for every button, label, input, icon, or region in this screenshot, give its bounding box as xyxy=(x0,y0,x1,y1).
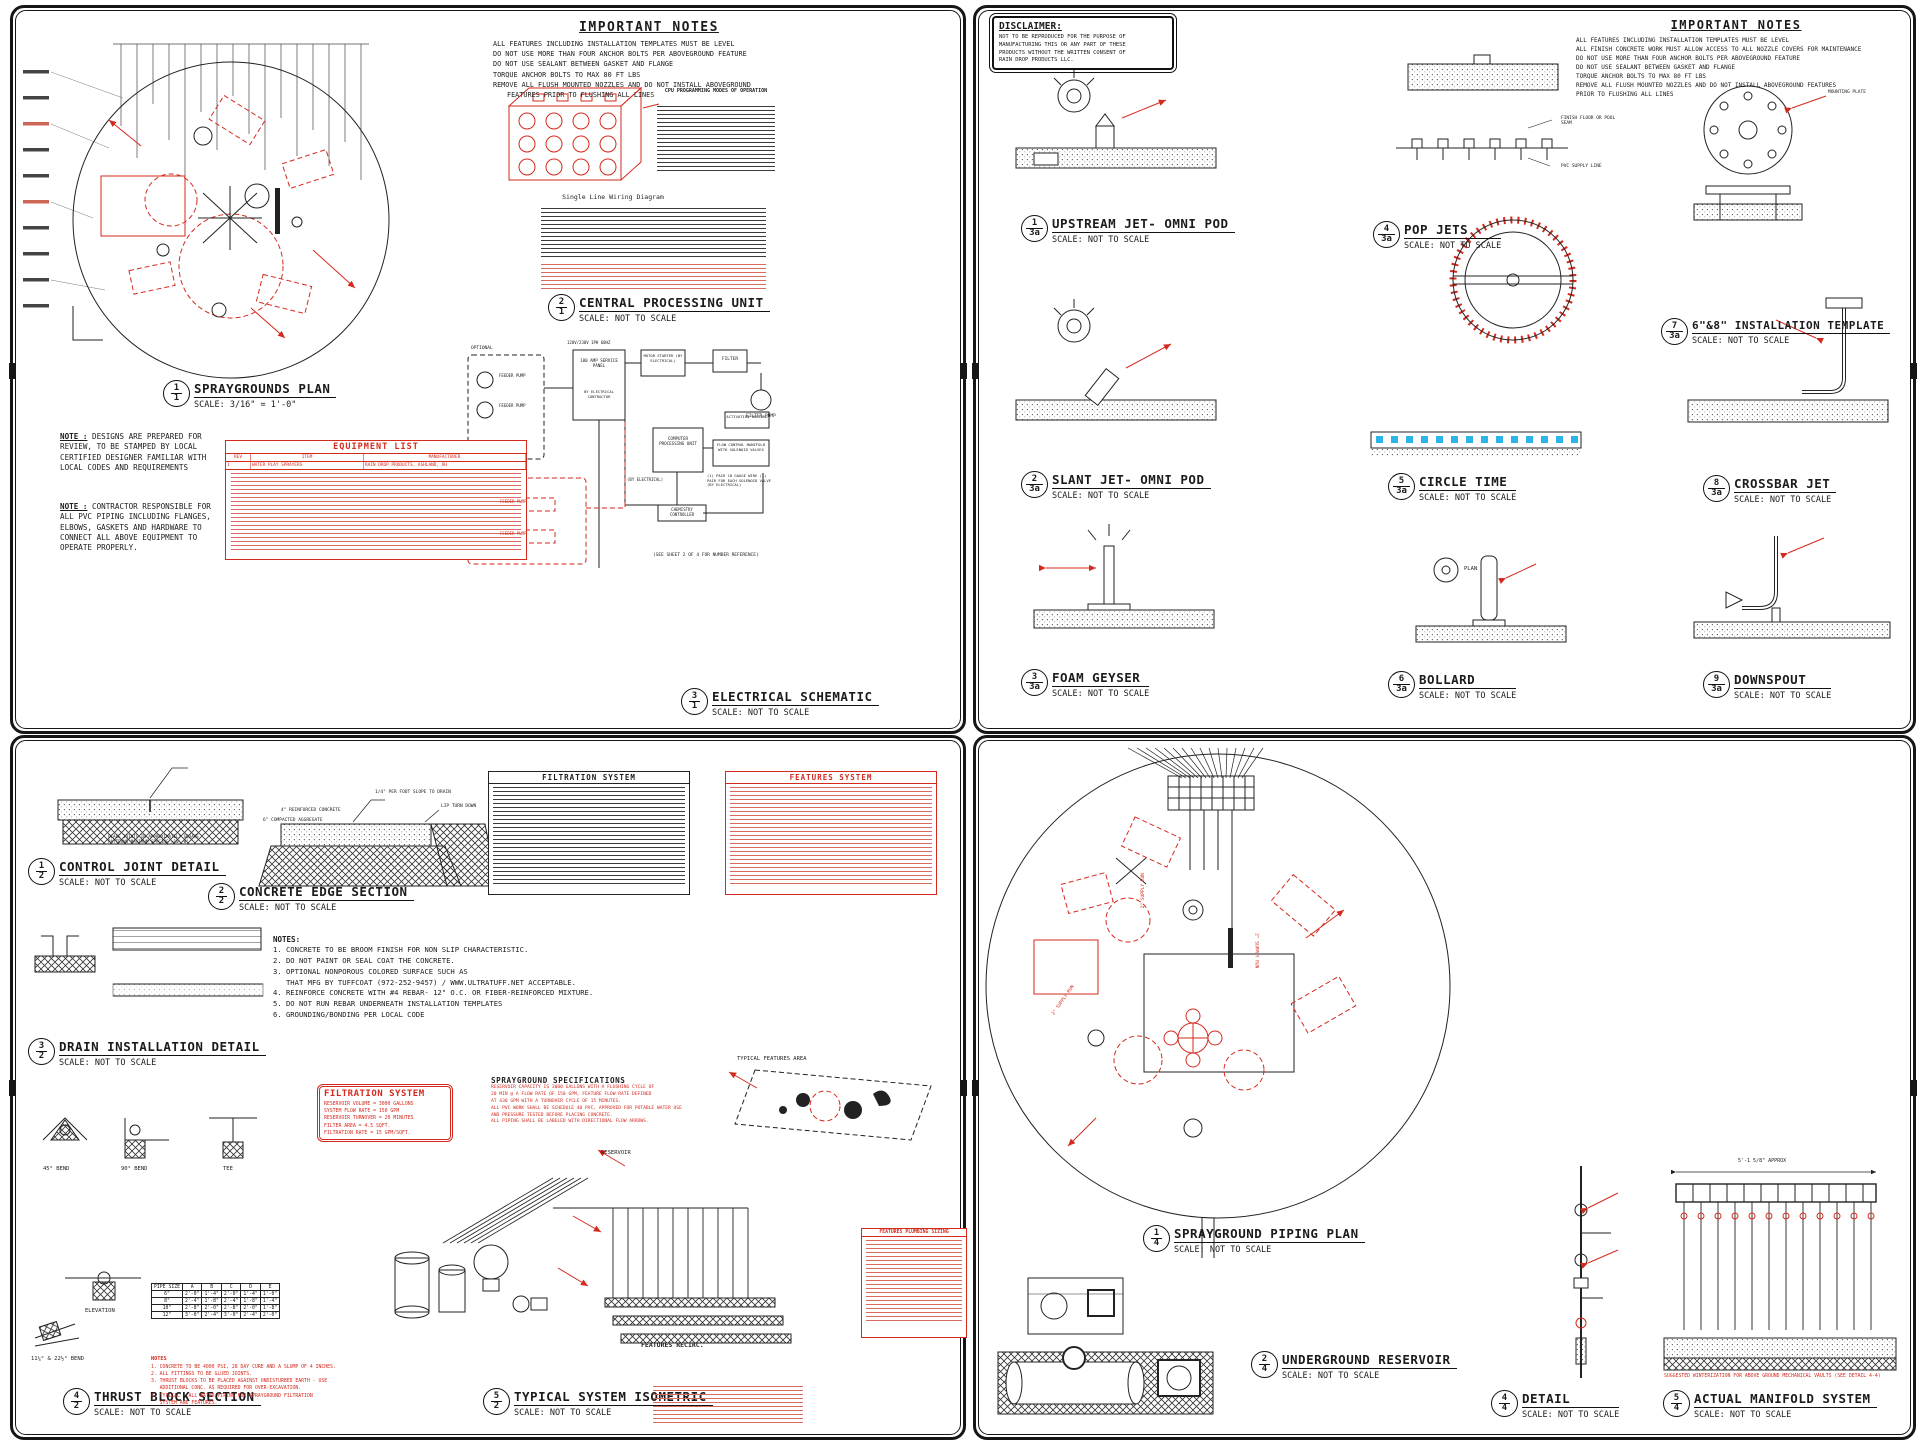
foam-geyser-drawing xyxy=(1034,524,1214,628)
detail-name: POP JETS xyxy=(1404,221,1501,239)
detail-title-spraygrounds-plan: 11 SPRAYGROUNDS PLANSCALE: 3/16" = 1'-0" xyxy=(163,380,336,410)
detail-title-upstream-jet: 13a UPSTREAM JET- OMNI PODSCALE: NOT TO … xyxy=(1021,215,1235,245)
detail-name: SPRAYGROUND PIPING PLAN xyxy=(1174,1225,1365,1243)
equipment-rows-greek xyxy=(231,473,521,551)
detail-title-piping-plan: 14 SPRAYGROUND PIPING PLANSCALE: NOT TO … xyxy=(1143,1225,1365,1255)
detail-scale: SCALE: NOT TO SCALE xyxy=(1522,1408,1619,1420)
detail-title-installation-template: 73a 6"&8" INSTALLATION TEMPLATESCALE: NO… xyxy=(1661,318,1890,346)
voltage-label: 120V/230V 1PH 60HZ xyxy=(567,341,610,346)
joint-spacing-label: PLACE JOINTS IN APPROXIMATELY SQUARE PAT… xyxy=(108,834,203,844)
equipment-list-title: EQUIPMENT LIST xyxy=(226,441,526,454)
detail-title-central-processing-unit: 21 CENTRAL PROCESSING UNITSCALE: NOT TO … xyxy=(548,294,770,324)
sheet-2-feature-details: DISCLAIMER: NOT TO BE REPRODUCED FOR THE… xyxy=(973,5,1916,734)
isometric-red-notes-greek xyxy=(653,1386,803,1424)
concrete-notes-block: NOTES: 1. CONCRETE TO BE BROOM FINISH FO… xyxy=(273,934,693,1021)
detail-title-electrical-schematic: 31 ELECTRICAL SCHEMATICSCALE: NOT TO SCA… xyxy=(681,688,879,718)
mounting-plate-label: MOUNTING PLATE xyxy=(1828,90,1866,95)
detail-name: ACTUAL MANIFOLD SYSTEM xyxy=(1694,1390,1877,1408)
note-line: 2. DO NOT PAINT OR SEAL COAT THE CONCRET… xyxy=(273,956,693,967)
cell: 1'-8" xyxy=(202,1298,221,1305)
note-label: NOTE : xyxy=(60,432,87,441)
spec-line: FILTRATION RATE = 15 GPM/SQFT. xyxy=(324,1130,446,1137)
detail-title-popjets: 43a POP JETSSCALE: NOT TO SCALE xyxy=(1373,221,1501,251)
detail-name: SLANT JET- OMNI POD xyxy=(1052,471,1211,489)
cell: 1'-4" xyxy=(202,1291,221,1298)
detail-bubble: 12 xyxy=(28,858,55,885)
actual-manifold-drawing xyxy=(1664,1172,1896,1370)
col-header: D xyxy=(241,1284,260,1291)
pipe-size-table: PIPE SIZE A B C D E 6"2'-0" 1'-4"2'-0" 1… xyxy=(151,1283,280,1319)
sheet-4-piping-plan: 2" SUPPLY RUN 2" SUPPLY RUN 2" SUPPLY RU… xyxy=(973,735,1916,1440)
cell: 10" xyxy=(152,1305,183,1312)
cell: 1'-0" xyxy=(260,1291,279,1298)
detail-scale: SCALE: NOT TO SCALE xyxy=(1282,1369,1457,1381)
bollard-drawing xyxy=(1416,556,1566,642)
cell: 8" xyxy=(152,1298,183,1305)
wiring-notes-black xyxy=(541,208,766,260)
sheet-3-sections-isometric: 12 CONTROL JOINT DETAILSCALE: NOT TO SCA… xyxy=(10,735,966,1440)
wire-pair-note: (1) PAIR 18 GAUGE WIRE (1) PAIR FOR EACH… xyxy=(707,474,771,488)
detail-name: FOAM GEYSER xyxy=(1052,669,1149,687)
detail-bubble: 23a xyxy=(1021,471,1048,498)
col-header: E xyxy=(260,1284,279,1291)
reservoir-label: RESERVOIR xyxy=(601,1150,631,1157)
table-title: FILTRATION SYSTEM xyxy=(489,772,689,784)
crossbar-jet-drawing xyxy=(1688,298,1888,422)
filter-label: FILTER xyxy=(716,357,744,362)
popjets-drawing xyxy=(1396,55,1568,166)
spec-line: FILTER AREA = 4.5 SQFT. xyxy=(324,1123,446,1130)
detail-name: DETAIL xyxy=(1522,1390,1619,1408)
detail-bubble: 22 xyxy=(208,883,235,910)
detail-name: BOLLARD xyxy=(1419,671,1516,689)
elevation-label: ELEVATION xyxy=(85,1308,115,1315)
feeder-pump-label: FEEDER PUMP xyxy=(499,404,526,409)
winterization-note: SUGGESTED WINTERIZATION FOR ABOVE GROUND… xyxy=(1664,1374,1889,1380)
cell: 2'-0" xyxy=(241,1305,260,1312)
detail-bubble: 54 xyxy=(1663,1390,1690,1417)
detail-title-bollard: 63a BOLLARDSCALE: NOT TO SCALE xyxy=(1388,671,1516,701)
finish-floor-label: FINISH FLOOR OR POOL SEAM xyxy=(1561,116,1621,127)
note-label: NOTE : xyxy=(60,502,87,511)
note-line: 5. DO NOT RUN REBAR UNDERNEATH INSTALLAT… xyxy=(273,999,693,1010)
sprayground-plan-drawing xyxy=(73,62,389,378)
detail-title-circle-time: 53a CIRCLE TIMESCALE: NOT TO SCALE xyxy=(1388,473,1516,503)
note-line: THAT MFG BY TUFFCOAT (972-252-9457) / WW… xyxy=(273,978,693,989)
detail-scale: SCALE: NOT TO SCALE xyxy=(1694,1408,1877,1420)
wiring-diagram-caption: Single Line Wiring Diagram xyxy=(533,194,693,202)
downspout-drawing xyxy=(1694,536,1890,638)
cell: 3'-0" xyxy=(183,1312,202,1319)
important-notes-block: IMPORTANT NOTES ALL FEATURES INCLUDING I… xyxy=(1576,18,1896,99)
detail-title-detail: 44 DETAILSCALE: NOT TO SCALE xyxy=(1491,1390,1619,1420)
note-line: 1. CONCRETE TO BE 4000 PSI, 28 DAY CURE … xyxy=(151,1364,381,1371)
col-header: PIPE SIZE xyxy=(152,1284,183,1291)
detail-name: 6"&8" INSTALLATION TEMPLATE xyxy=(1692,318,1890,334)
detail-bubble: 31 xyxy=(681,688,708,715)
optional-label: OPTIONAL xyxy=(471,346,493,351)
sheet-1-spraygrounds-plan: IMPORTANT NOTES ALL FEATURES INCLUDING I… xyxy=(10,5,966,734)
important-notes-title: IMPORTANT NOTES xyxy=(1576,18,1896,32)
detail-name: UNDERGROUND RESERVOIR xyxy=(1282,1351,1457,1369)
note-line: 6. GROUNDING/BONDING PER LOCAL CODE xyxy=(273,1010,693,1021)
cell: 2'-0" xyxy=(183,1291,202,1298)
feeder-pump-label: FEEDER PUMP xyxy=(499,374,526,379)
detail-scale: SCALE: NOT TO SCALE xyxy=(59,1056,266,1068)
detail-scale: SCALE: NOT TO SCALE xyxy=(1052,687,1149,699)
features-plumbing-sizing-table: FEATURES PLUMBING SIZING xyxy=(861,1228,967,1338)
detail-bubble: 52 xyxy=(483,1388,510,1415)
note-line: ALL FEATURES INCLUDING INSTALLATION TEMP… xyxy=(1576,36,1896,45)
detail-bubble: 63a xyxy=(1388,671,1415,698)
detail-bubble: 83a xyxy=(1703,475,1730,502)
spec-line: 20 MIN @ A FLOW RATE OF 150 GPM, FEATURE… xyxy=(491,1092,721,1099)
spec-line: RESERVOIR TURNOVER = 20 MINUTES xyxy=(324,1115,446,1122)
thrust-block-notes: NOTES 1. CONCRETE TO BE 4000 PSI, 28 DAY… xyxy=(151,1356,381,1407)
contractor-note: NOTE : CONTRACTOR RESPONSIBLE FOR ALL PV… xyxy=(60,502,218,553)
detail-bubble: 21 xyxy=(548,294,575,321)
notes-title: NOTES xyxy=(151,1356,381,1364)
sprayground-specifications: SPRAYGROUND SPECIFICATIONS RESERVOIR CAP… xyxy=(491,1076,721,1126)
note-line: 3. THRUST BLOCKS TO BE PLACED AGAINST UN… xyxy=(151,1378,381,1385)
detail-name: CONCRETE EDGE SECTION xyxy=(239,883,414,901)
cell: 2'-0" xyxy=(202,1305,221,1312)
design-note: NOTE : DESIGNS ARE PREPARED FOR REVIEW, … xyxy=(60,432,218,473)
spec-line: SYSTEM FLOW RATE = 150 GPM xyxy=(324,1108,446,1115)
detail-scale: SCALE: NOT TO SCALE xyxy=(1404,239,1501,251)
cpu-programming-text-block xyxy=(657,106,775,172)
note-line: TORQUE ANCHOR BOLTS TO MAX 80 FT LBS xyxy=(493,70,805,80)
disclaimer-line: MANUFACTURING THIS OR ANY PART OF THESE xyxy=(999,42,1167,50)
manifold-width-dimension: 5'-1 5/8" APPROX xyxy=(1738,1158,1786,1164)
detail-title-control-joint: 12 CONTROL JOINT DETAILSCALE: NOT TO SCA… xyxy=(28,858,226,888)
tee-label: TEE xyxy=(223,1166,233,1173)
disclaimer-line: NOT TO BE REPRODUCED FOR THE PURPOSE OF xyxy=(999,34,1167,42)
detail-scale: SCALE: NOT TO SCALE xyxy=(579,312,770,324)
detail-name: DOWNSPOUT xyxy=(1734,671,1831,689)
cell: 1'-4" xyxy=(260,1298,279,1305)
plan-label: PLAN xyxy=(1464,566,1477,573)
slope-label: 1/4" PER FOOT SLOPE TO DRAIN xyxy=(375,790,451,795)
col-header: ITEM xyxy=(251,454,364,461)
detail-bubble: 13a xyxy=(1021,215,1048,242)
detail-scale: SCALE: NOT TO SCALE xyxy=(1052,233,1235,245)
cell: 1'-8" xyxy=(241,1298,260,1305)
detail-scale: SCALE: NOT TO SCALE xyxy=(712,706,879,718)
service-panel-label: 100 AMP SERVICE PANEL xyxy=(576,358,622,368)
detail-scale: SCALE: 3/16" = 1'-0" xyxy=(194,398,336,410)
feeder-pump-red-label: FEEDER PUMP xyxy=(500,532,527,537)
detail-bubble: 14 xyxy=(1143,1225,1170,1252)
computer-processing-unit-label: COMPUTER PROCESSING UNIT xyxy=(655,436,701,446)
control-joint-drawing xyxy=(58,768,243,844)
specifications-title: SPRAYGROUND SPECIFICATIONS xyxy=(491,1076,721,1085)
cell: 2'-0" xyxy=(260,1312,279,1319)
spec-line: AT 430 GPM WITH A TURNOVER CYCLE OF 15 M… xyxy=(491,1099,721,1106)
cell: 6" xyxy=(152,1291,183,1298)
motor-starter-label: MOTOR STARTER (BY ELECTRICAL) xyxy=(642,354,684,363)
detail-bubble: 24 xyxy=(1251,1351,1278,1378)
pvc-supply-label: PVC SUPPLY LINE xyxy=(1561,164,1602,169)
note-line: TORQUE ANCHOR BOLTS TO MAX 80 FT LBS xyxy=(1576,72,1896,81)
detail-bubble: 11 xyxy=(163,380,190,407)
sheet-1-drawing xyxy=(13,8,963,731)
note-line: 1. CONCRETE TO BE BROOM FINISH FOR NON S… xyxy=(273,945,693,956)
detail-scale: SCALE: NOT TO SCALE xyxy=(1174,1243,1365,1255)
detail-bubble: 73a xyxy=(1661,318,1688,345)
wiring-notes-red xyxy=(541,264,766,290)
spec-line: RESERVOIR VOLUME = 3000 GALLONS xyxy=(324,1101,446,1108)
detail-title-slant-jet: 23a SLANT JET- OMNI PODSCALE: NOT TO SCA… xyxy=(1021,471,1211,501)
cpu-box-drawing xyxy=(509,88,659,180)
sheet-4-drawing xyxy=(976,738,1913,1437)
col-header: A xyxy=(183,1284,202,1291)
note-line: DO NOT USE MORE THAN FOUR ANCHOR BOLTS P… xyxy=(1576,54,1896,63)
detail-name: SPRAYGROUNDS PLAN xyxy=(194,380,336,398)
cell: 2'-4" xyxy=(183,1298,202,1305)
detail-bubble: 44 xyxy=(1491,1390,1518,1417)
plan-dimension-lines xyxy=(113,44,369,180)
detail-bubble: 42 xyxy=(63,1388,90,1415)
detail-bubble: 33a xyxy=(1021,669,1048,696)
drawing-set-page: IMPORTANT NOTES ALL FEATURES INCLUDING I… xyxy=(0,0,1920,1440)
note-line: DO NOT USE SEALANT BETWEEN GASKET AND FL… xyxy=(493,59,805,69)
bend-90-label: 90° BEND xyxy=(121,1166,148,1173)
flow-control-manifold-label: FLOW CONTROL MANIFOLD WITH SOLENOID VALV… xyxy=(714,443,768,452)
cell: 2'-4" xyxy=(221,1298,240,1305)
by-electrical-label: (BY ELECTRICAL) xyxy=(627,478,663,483)
supply-run-label: 2" SUPPLY RUN xyxy=(1141,873,1146,908)
cell: 12" xyxy=(152,1312,183,1319)
detail-scale: SCALE: NOT TO SCALE xyxy=(1734,493,1836,505)
note-line: 2. ALL FITTINGS TO BE GLUED JOINTS. xyxy=(151,1371,381,1378)
cell: 2'-4" xyxy=(241,1312,260,1319)
reinforced-concrete-label: 4" REINFORCED CONCRETE xyxy=(281,808,341,813)
system-isometric-drawing xyxy=(395,1150,791,1343)
feeder-pump-red-label: FEEDER PUMP xyxy=(500,500,527,505)
note-line: SYSTEM AND FEATURES. xyxy=(151,1400,381,1407)
spec-line: ALL PVC WORK SHALL BE SCHEDULE 40 PVC, A… xyxy=(491,1106,721,1113)
col-header: C xyxy=(221,1284,240,1291)
by-electrical-contractor-label: BY ELECTRICAL CONTRACTOR xyxy=(576,390,622,399)
detail-title-actual-manifold: 54 ACTUAL MANIFOLD SYSTEMSCALE: NOT TO S… xyxy=(1663,1390,1877,1420)
detail-scale: SCALE: NOT TO SCALE xyxy=(1419,689,1516,701)
cell: 2'-0" xyxy=(221,1291,240,1298)
filtration-system-spec-box: FILTRATION SYSTEM RESERVOIR VOLUME = 300… xyxy=(319,1086,451,1140)
see-sheet-note: (SEE SHEET 2 OF 4 FOR NUMBER REFERENCE) xyxy=(653,553,803,558)
upstream-jet-drawing xyxy=(1016,69,1216,168)
table-rows-greek xyxy=(866,1240,962,1324)
drain-installation-drawing xyxy=(35,928,263,996)
typical-features-area-label: TYPICAL FEATURES AREA xyxy=(737,1056,807,1063)
cell: 1'-4" xyxy=(241,1291,260,1298)
typical-features-area-drawing xyxy=(729,1070,931,1140)
note-line: ALL FEATURES INCLUDING INSTALLATION TEMP… xyxy=(493,39,805,49)
cell: 1'-8" xyxy=(260,1305,279,1312)
detail-title-underground-reservoir: 24 UNDERGROUND RESERVOIRSCALE: NOT TO SC… xyxy=(1251,1351,1457,1381)
table-title: FEATURES SYSTEM xyxy=(726,772,936,784)
chemistry-controller-label: CHEMISTRY CONTROLLER xyxy=(659,508,705,518)
detail-name: ELECTRICAL SCHEMATIC xyxy=(712,688,879,706)
disclaimer-line: PRODUCTS WITHOUT THE WRITTEN CONSENT OF xyxy=(999,50,1167,58)
plan-left-dim-labels xyxy=(23,70,123,308)
detail-name: CONTROL JOINT DETAIL xyxy=(59,858,226,876)
equipment-list-table: EQUIPMENT LIST REV ITEM MANUFACTURER 1 W… xyxy=(225,440,527,560)
cpu-programming-header: CPU PROGRAMMING MODES OF OPERATION xyxy=(661,88,771,94)
sheet-2-drawing xyxy=(976,8,1913,731)
slant-jet-drawing xyxy=(1016,299,1216,420)
detail-scale: SCALE: NOT TO SCALE xyxy=(1052,489,1211,501)
cell: 2'-8" xyxy=(183,1305,202,1312)
note-line: 3. OPTIONAL NONPOROUS COLORED SURFACE SU… xyxy=(273,967,693,978)
detail-name: UPSTREAM JET- OMNI POD xyxy=(1052,215,1235,233)
filtration-system-table: FILTRATION SYSTEM xyxy=(488,771,690,895)
note-line: ALL FINISH CONCRETE WORK MUST ALLOW ACCE… xyxy=(1576,45,1896,54)
detail-name: DRAIN INSTALLATION DETAIL xyxy=(59,1038,266,1056)
detail-bubble: 32 xyxy=(28,1038,55,1065)
detail-title-drain-installation: 32 DRAIN INSTALLATION DETAILSCALE: NOT T… xyxy=(28,1038,266,1068)
bend-45-label: 45° BEND xyxy=(43,1166,70,1173)
cell: 2'-8" xyxy=(221,1305,240,1312)
table-title: FEATURES PLUMBING SIZING xyxy=(862,1229,966,1237)
installation-template-drawing xyxy=(1694,86,1826,220)
note-line: 4. REINFORCE CONCRETE WITH #4 REBAR- 12"… xyxy=(273,988,693,999)
detail-title-downspout: 93a DOWNSPOUTSCALE: NOT TO SCALE xyxy=(1703,671,1831,701)
spec-line: ALL PIPING SHALL BE LABELED WITH DIRECTI… xyxy=(491,1119,721,1126)
detail-scale: SCALE: NOT TO SCALE xyxy=(59,876,226,888)
notes-title: NOTES: xyxy=(273,934,693,945)
disclaimer-line: RAIN DROP PRODUCTS LLC. xyxy=(999,57,1167,65)
aggregate-label: 6" COMPACTED AGGREGATE xyxy=(263,818,323,823)
manifold-fan-drawing xyxy=(1128,748,1263,954)
spec-line: RESERVOIR CAPACITY IS 3000 GALLONS WITH … xyxy=(491,1085,721,1092)
note-line: 4. TYPICAL - ALL WATER PIPING FOR SPRAYG… xyxy=(151,1393,381,1400)
note-line: ADDITIONAL CONC. AS REQUIRED FOR OVER-EX… xyxy=(151,1385,381,1392)
disclaimer-box: DISCLAIMER: NOT TO BE REPRODUCED FOR THE… xyxy=(992,16,1174,70)
table-rows-greek xyxy=(493,787,685,887)
detail-name: CIRCLE TIME xyxy=(1419,473,1516,491)
supply-run-label: 2" SUPPLY RUN xyxy=(1253,933,1258,968)
table-rows-greek xyxy=(730,787,932,887)
detail-name: CENTRAL PROCESSING UNIT xyxy=(579,294,770,312)
detail-title-crossbar-jet: 83a CROSSBAR JETSCALE: NOT TO SCALE xyxy=(1703,475,1836,505)
detail-scale: SCALE: NOT TO SCALE xyxy=(1692,334,1890,346)
features-system-table: FEATURES SYSTEM xyxy=(725,771,937,895)
cell: 3'-0" xyxy=(221,1312,240,1319)
detail-bubble: 93a xyxy=(1703,671,1730,698)
activation-bollard-label: ACTIVATION BOLLARD xyxy=(726,415,768,420)
col-header: REV xyxy=(226,454,251,461)
note-line: REMOVE ALL FLUSH MOUNTED NOZZLES AND DO … xyxy=(1576,81,1896,90)
detail-scale: SCALE: NOT TO SCALE xyxy=(239,901,414,913)
detail-scale: SCALE: NOT TO SCALE xyxy=(94,1406,261,1418)
lip-turn-down-label: LIP TURN DOWN xyxy=(441,804,476,809)
cell: WATER PLAY SPRAYERS xyxy=(251,462,364,469)
winterization-detail-drawing xyxy=(1574,1166,1618,1378)
col-header: MANUFACTURER xyxy=(364,454,526,461)
detail-bubble: 43a xyxy=(1373,221,1400,248)
features-recirc-label: FEATURES RECIRC. xyxy=(641,1342,704,1350)
bend-11-22-label: 11¼° & 22½° BEND xyxy=(31,1356,84,1363)
detail-title-foam-geyser: 33a FOAM GEYSERSCALE: NOT TO SCALE xyxy=(1021,669,1149,699)
important-notes-title: IMPORTANT NOTES xyxy=(493,20,805,35)
detail-name: CROSSBAR JET xyxy=(1734,475,1836,493)
detail-scale: SCALE: NOT TO SCALE xyxy=(1734,689,1831,701)
circle-time-drawing xyxy=(1371,220,1581,456)
cell: RAIN DROP PRODUCTS, ASHLAND, OH xyxy=(364,462,526,469)
cell: 2'-4" xyxy=(202,1312,221,1319)
disclaimer-title: DISCLAIMER: xyxy=(999,21,1167,32)
spec-box-title: FILTRATION SYSTEM xyxy=(324,1089,446,1099)
detail-bubble: 53a xyxy=(1388,473,1415,500)
col-header: B xyxy=(202,1284,221,1291)
detail-title-concrete-edge: 22 CONCRETE EDGE SECTIONSCALE: NOT TO SC… xyxy=(208,883,414,913)
note-line: DO NOT USE SEALANT BETWEEN GASKET AND FL… xyxy=(1576,63,1896,72)
underground-reservoir-drawing xyxy=(998,1278,1213,1414)
detail-scale: SCALE: NOT TO SCALE xyxy=(1419,491,1516,503)
note-line: DO NOT USE MORE THAN FOUR ANCHOR BOLTS P… xyxy=(493,49,805,59)
cell: 1 xyxy=(226,462,251,469)
